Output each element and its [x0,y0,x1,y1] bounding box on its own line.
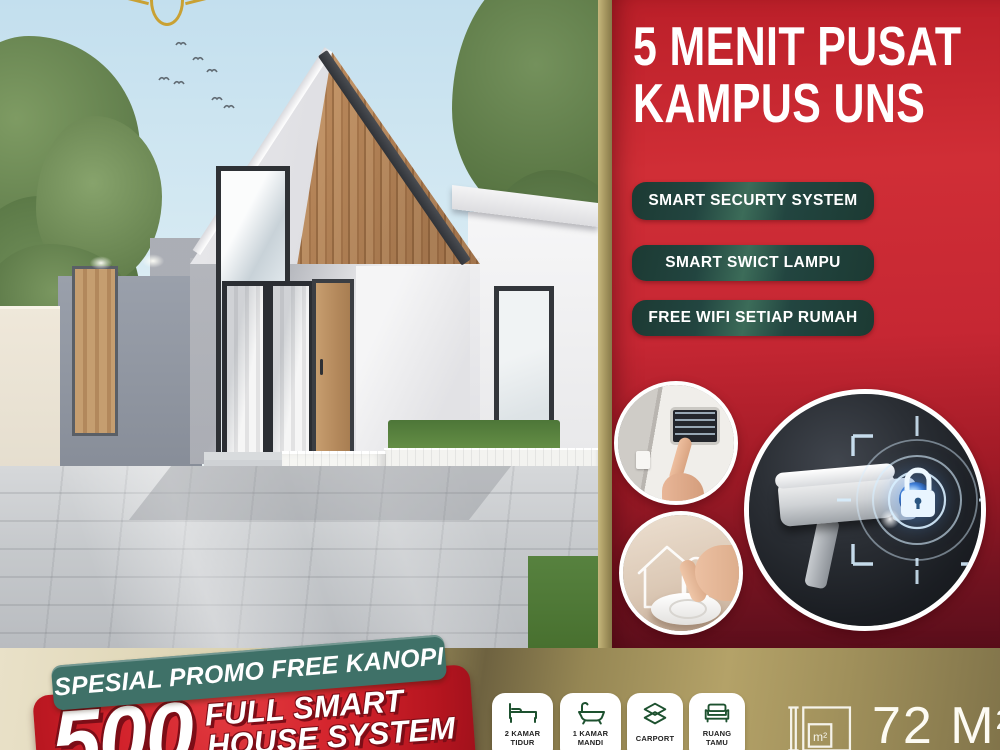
feature-card-carport: CARPORT [627,693,683,750]
target-reticle-icon [749,394,986,631]
headline-line2: KAMPUS UNS [633,75,925,132]
curtain-window-2 [268,281,314,457]
bird-icon [175,40,187,47]
house-shadow [129,466,511,520]
bird-icon [223,103,235,110]
bird-icon [206,67,218,74]
smart-panel-icon [670,407,720,445]
smart-button-device [651,593,721,625]
area-m2-icon: m² [784,700,858,750]
badge-label: FREE WIFI SETIAP RUMAH [648,309,857,327]
grass-patch-front [528,556,598,648]
sofa-icon [701,700,733,726]
area-group: m² 72 M2 [784,700,1000,750]
feature-label: MANDI [573,738,609,747]
downlight-glow [138,252,168,270]
feature-card-bedroom: 2 KAMAR TIDUR [492,693,553,750]
feature-badge-wifi: FREE WIFI SETIAP RUMAH [632,300,874,336]
bird-icon [173,79,185,86]
feature-label: RUANG [703,729,732,738]
house-render-photo [0,0,598,648]
feature-badge-switch: SMART SWICT LAMPU [632,245,874,281]
feature-label: 2 KAMAR [505,729,541,738]
headline: 5 MENIT PUSAT KAMPUS UNS [633,18,1000,132]
promo-panel: 5 MENIT PUSAT KAMPUS UNS SMART SECURTY S… [612,0,1000,648]
bed-icon [506,700,540,726]
carport-icon [640,700,670,728]
feature-card-bathroom: 1 KAMAR MANDI [560,693,621,750]
lock-icon [901,470,935,517]
bird-icon [192,55,204,62]
gold-divider-strip [598,0,612,648]
svg-text:m²: m² [813,730,827,744]
badge-label: SMART SECURTY SYSTEM [648,192,857,210]
bathtub-icon [574,700,608,726]
bird-icon [158,75,170,82]
feature-card-livingroom: RUANG TAMU [689,693,745,750]
bird-icon [211,95,223,102]
curtain-window-1 [222,281,268,457]
area-value: 72 M2 [872,700,1000,750]
property-promo-poster: 5 MENIT PUSAT KAMPUS UNS SMART SECURTY S… [0,0,1000,750]
downlight-glow [86,254,116,272]
photo-circle-smart-panel [614,381,738,505]
feature-label: 1 KAMAR [573,729,609,738]
headline-line1: 5 MENIT PUSAT [633,18,961,75]
feature-badge-security: SMART SECURTY SYSTEM [632,182,874,220]
badge-label: SMART SWICT LAMPU [665,254,841,272]
feature-label: TAMU [703,738,732,747]
feature-label: TIDUR [505,738,541,747]
gold-ornament-icon [150,0,184,26]
bottom-info-strip: 500 FULL SMART HOUSE SYSTEM SPESIAL PROM… [0,648,1000,750]
feature-label: CARPORT [636,734,674,743]
front-door [312,279,354,457]
photo-circle-smart-button [619,511,743,635]
side-door [72,266,118,436]
photo-circle-cctv [744,389,986,631]
